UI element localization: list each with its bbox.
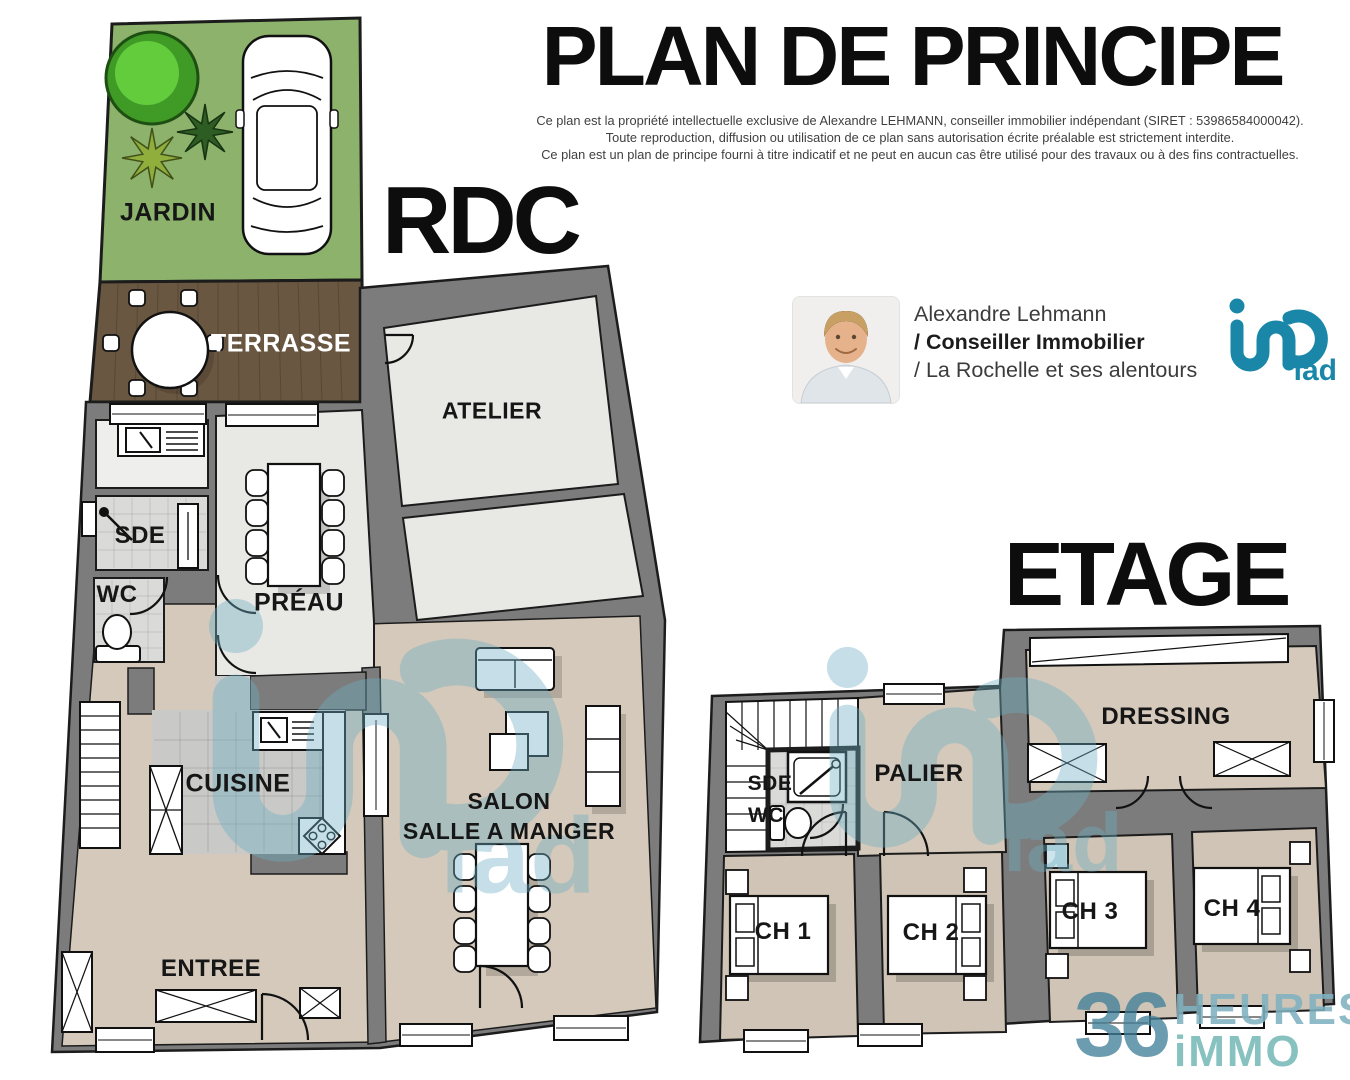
- room-label-terrasse: TERRASSE: [211, 330, 351, 359]
- room-label-palier: PALIER: [874, 760, 963, 788]
- brand-36-word-immo: iMMO: [1174, 1030, 1302, 1074]
- page-title: PLAN DE PRINCIPE: [512, 8, 1312, 105]
- disclaimer-line-2: Toute reproduction, diffusion ou utilisa…: [520, 130, 1320, 147]
- room-label-jardin: JARDIN: [120, 199, 216, 228]
- rdc-floor-label: RDC: [382, 166, 578, 276]
- room-label-salon: SALON SALLE A MANGER: [403, 786, 615, 846]
- room-label-ch3: CH 3: [1062, 898, 1119, 926]
- tree-icon: [106, 32, 198, 124]
- disclaimer-line-3: Ce plan est un plan de principe fourni à…: [520, 147, 1320, 164]
- agent-avatar: [793, 297, 899, 403]
- laundry-sink-icon: [118, 424, 204, 456]
- shrub-icon: [177, 104, 233, 160]
- room-label-sde-etage: SDE: [748, 772, 793, 796]
- iad-logo: [1224, 294, 1342, 386]
- room-label-sde-rdc: SDE: [115, 522, 166, 550]
- room-label-entree: ENTREE: [161, 955, 261, 983]
- wall-strip: [128, 668, 154, 714]
- garden-area: [100, 18, 362, 282]
- room-label-salon-line2: SALLE A MANGER: [403, 816, 615, 846]
- staircase-rdc: [80, 702, 120, 848]
- room-label-atelier: ATELIER: [442, 398, 542, 425]
- disclaimer-line-1: Ce plan est la propriété intellectuelle …: [520, 113, 1320, 130]
- brand-36-heures-immo: 36 HEURES iMMO: [1070, 980, 1350, 1080]
- car-icon: [236, 36, 338, 254]
- room-label-salon-line1: SALON: [403, 786, 615, 816]
- agent-territory: / La Rochelle et ses alentours: [914, 358, 1197, 383]
- kitchen-cabinet-icon: [150, 766, 182, 854]
- room-label-wc-rdc: WC: [97, 581, 138, 609]
- plant-icon: [122, 128, 182, 188]
- room-label-cuisine: CUISINE: [186, 770, 291, 799]
- room-label-ch4: CH 4: [1204, 895, 1261, 923]
- agent-name: Alexandre Lehmann: [914, 302, 1106, 327]
- dressing-window: [1030, 634, 1288, 666]
- brand-36-number: 36: [1074, 980, 1166, 1070]
- brand-36-word-heures: HEURES: [1174, 988, 1350, 1032]
- room-label-dressing: DRESSING: [1101, 703, 1230, 731]
- agent-role: / Conseiller Immobilier: [914, 330, 1145, 355]
- agent-photo: [792, 296, 900, 404]
- plan-de-principe-sheet: iad: [0, 0, 1350, 1080]
- room-label-ch1: CH 1: [755, 918, 812, 946]
- room-label-ch2: CH 2: [903, 919, 960, 947]
- room-label-wc-etage: WC: [748, 804, 784, 828]
- etage-floor-label: ETAGE: [1004, 524, 1287, 627]
- room-label-preau: PRÉAU: [254, 589, 344, 618]
